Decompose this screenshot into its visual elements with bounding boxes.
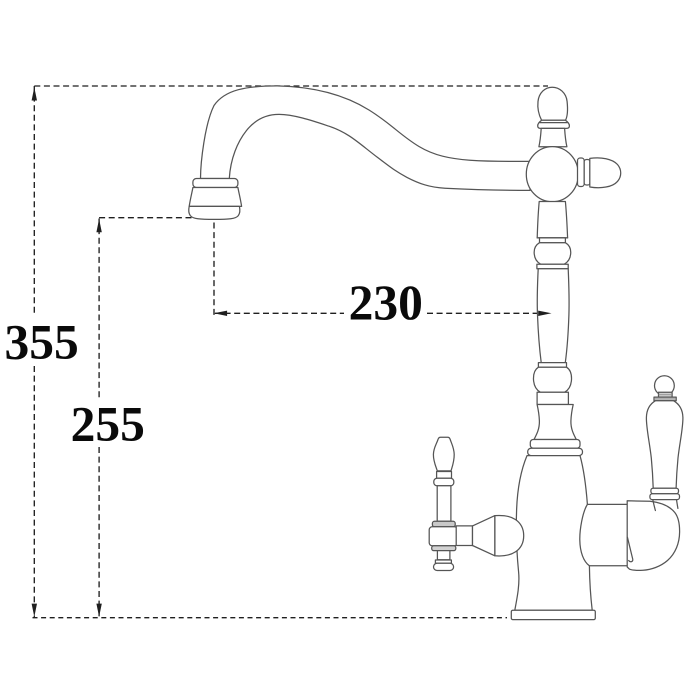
svg-text:355: 355 — [4, 315, 78, 370]
svg-text:230: 230 — [349, 275, 423, 330]
svg-text:255: 255 — [71, 396, 145, 451]
